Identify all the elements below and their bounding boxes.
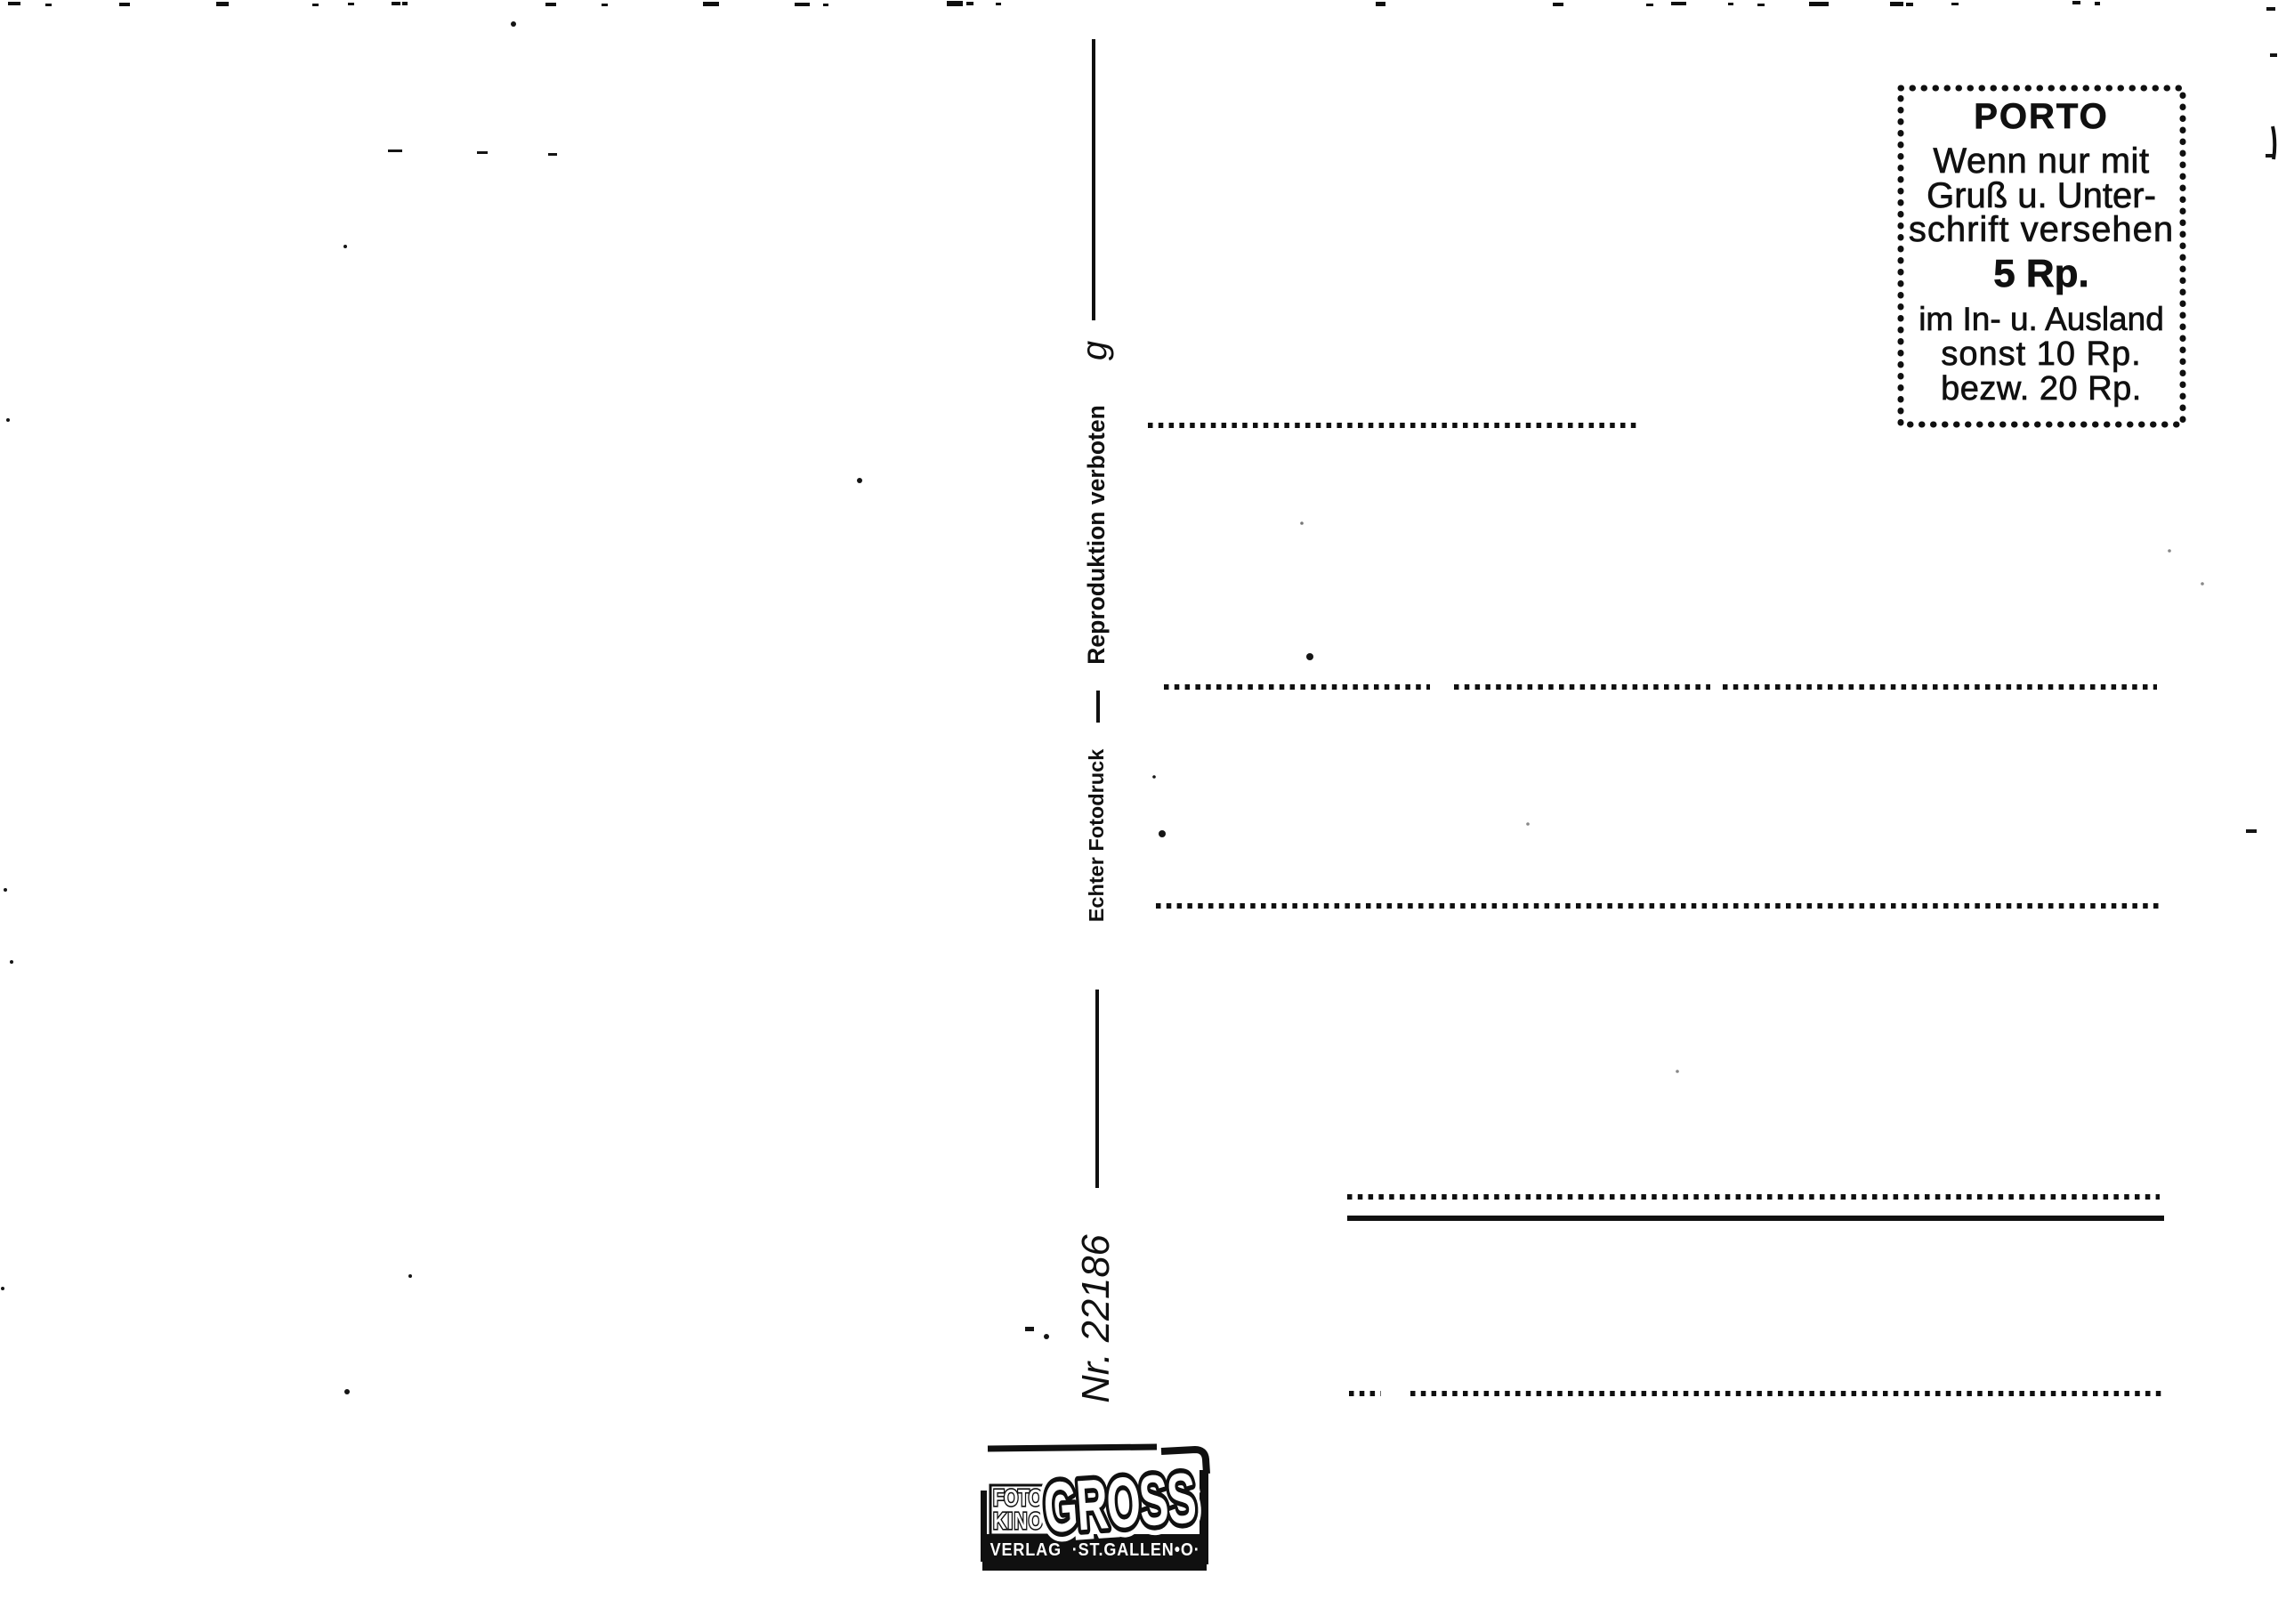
svg-text:Reproduktion verboten: Reproduktion verboten <box>1083 405 1110 665</box>
svg-text:5 Rp.: 5 Rp. <box>1993 252 2089 295</box>
svg-text:Echter Fotodruck: Echter Fotodruck <box>1085 748 1108 922</box>
svg-text:Wenn nur mit: Wenn nur mit <box>1933 141 2149 181</box>
svg-text:sonst 10 Rp.: sonst 10 Rp. <box>1941 335 2141 373</box>
svg-text:Nr. 22186: Nr. 22186 <box>1075 1233 1118 1402</box>
svg-text:PORTO: PORTO <box>1974 97 2109 136</box>
svg-text:g: g <box>1075 341 1114 360</box>
svg-text:bezw. 20 Rp.: bezw. 20 Rp. <box>1941 370 2142 408</box>
svg-text:schrift versehen: schrift versehen <box>1909 210 2174 249</box>
svg-text:KINO: KINO <box>993 1508 1044 1534</box>
svg-text:im In- u. Ausland: im In- u. Ausland <box>1919 301 2164 337</box>
svg-text:FOTO: FOTO <box>993 1485 1044 1511</box>
svg-text:VERLAG ·ST.GALLEN•O·: VERLAG ·ST.GALLEN•O· <box>990 1540 1200 1560</box>
svg-text:GROSS: GROSS <box>1041 1458 1198 1548</box>
